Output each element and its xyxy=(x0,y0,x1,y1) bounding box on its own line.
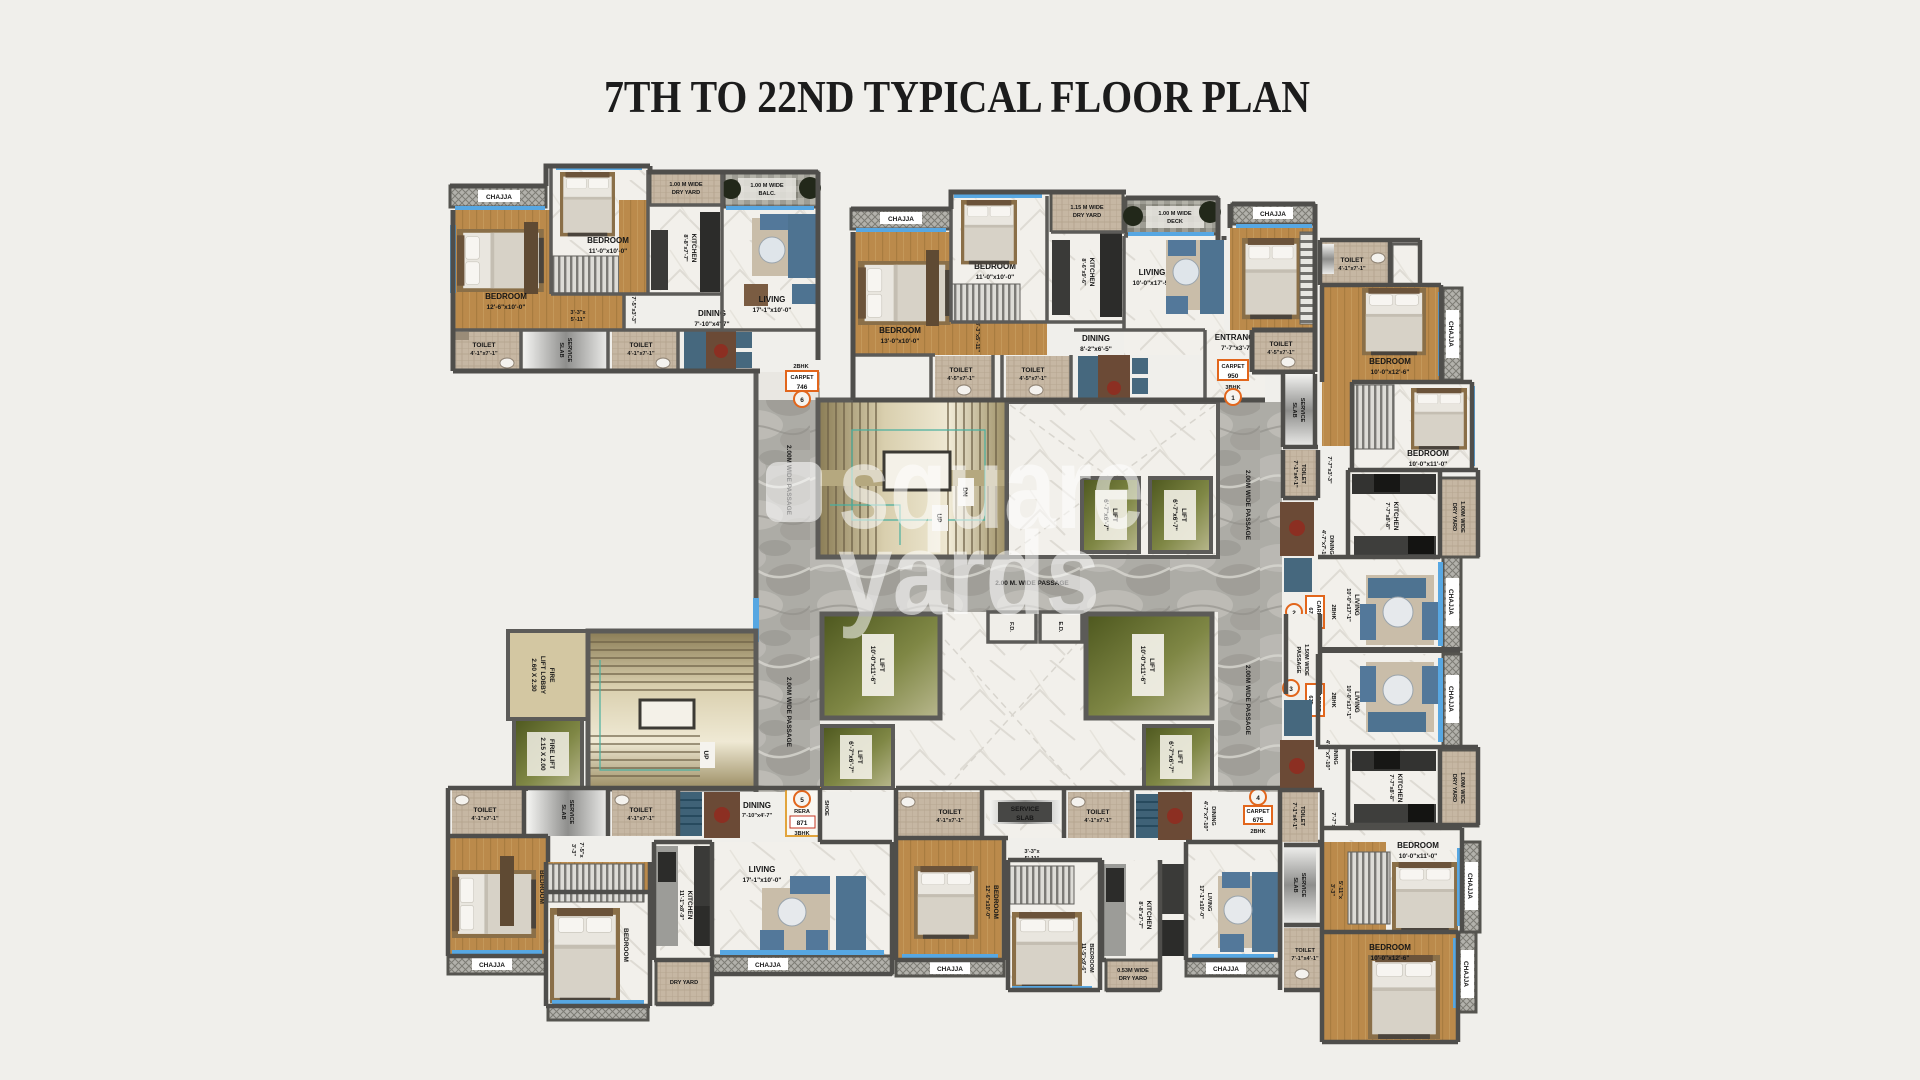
svg-text:DRY YARD: DRY YARD xyxy=(1073,213,1101,219)
svg-text:8'-2"x6'-5": 8'-2"x6'-5" xyxy=(1080,346,1112,353)
svg-text:950: 950 xyxy=(1228,373,1239,380)
svg-text:TOILET: TOILET xyxy=(1295,948,1315,954)
svg-text:CARPET: CARPET xyxy=(791,375,815,381)
svg-text:UP: UP xyxy=(702,750,709,760)
svg-text:7'-1"x4'-1": 7'-1"x4'-1" xyxy=(1292,460,1298,488)
svg-text:TOILET: TOILET xyxy=(1341,257,1364,264)
svg-text:4: 4 xyxy=(1256,795,1260,802)
svg-text:1.00 M WIDE: 1.00 M WIDE xyxy=(750,183,784,189)
svg-text:11'-1"x8'-9": 11'-1"x8'-9" xyxy=(678,890,684,920)
svg-text:10'-0"x12'-6": 10'-0"x12'-6" xyxy=(1371,369,1410,376)
svg-text:CHAJJA: CHAJJA xyxy=(1447,321,1454,347)
svg-text:6'-7"x6'-7": 6'-7"x6'-7" xyxy=(1171,499,1178,531)
svg-text:7'-10"x4'-7": 7'-10"x4'-7" xyxy=(742,813,773,819)
svg-text:BEDROOM: BEDROOM xyxy=(1407,449,1449,458)
svg-text:1.00 M WIDE: 1.00 M WIDE xyxy=(669,182,703,188)
svg-text:LIVING: LIVING xyxy=(1139,268,1166,277)
svg-text:10'-0"x11'-6": 10'-0"x11'-6" xyxy=(869,646,876,685)
svg-text:TOILET: TOILET xyxy=(630,807,653,814)
svg-text:2.15 X 2.00: 2.15 X 2.00 xyxy=(539,737,546,771)
svg-text:2.00M WIDE PASSAGE: 2.00M WIDE PASSAGE xyxy=(785,677,792,748)
svg-text:CHAJJA: CHAJJA xyxy=(1466,873,1473,899)
svg-text:LIFT: LIFT xyxy=(856,750,863,764)
svg-text:DRY YARD: DRY YARD xyxy=(1451,774,1457,802)
svg-text:3: 3 xyxy=(1289,686,1293,693)
svg-text:1.15 M WIDE: 1.15 M WIDE xyxy=(1070,205,1104,211)
svg-text:17'-1"x10'-0": 17'-1"x10'-0" xyxy=(1198,885,1204,919)
svg-text:1.00M WIDE: 1.00M WIDE xyxy=(1459,772,1465,804)
svg-text:SHOE: SHOE xyxy=(823,800,829,816)
svg-text:KITCHEN: KITCHEN xyxy=(1145,901,1152,930)
svg-text:SERVICE: SERVICE xyxy=(1011,806,1040,813)
svg-text:7'-5"x3'-3": 7'-5"x3'-3" xyxy=(630,296,636,324)
svg-text:7'-1"x4'-1": 7'-1"x4'-1" xyxy=(1291,956,1319,962)
svg-text:2.60 X 2.30: 2.60 X 2.30 xyxy=(530,658,537,692)
svg-text:CARPET: CARPET xyxy=(1222,364,1246,370)
svg-text:DINING: DINING xyxy=(1210,806,1216,826)
svg-text:SLAB: SLAB xyxy=(1016,815,1034,822)
svg-text:BEDROOM: BEDROOM xyxy=(879,326,921,335)
svg-text:10'-0"x12'-6": 10'-0"x12'-6" xyxy=(1371,955,1410,962)
svg-text:1: 1 xyxy=(1231,395,1235,402)
svg-text:7'-7"x3'-7": 7'-7"x3'-7" xyxy=(1221,345,1253,352)
svg-text:7'-7"x3'-3": 7'-7"x3'-3" xyxy=(1326,456,1332,484)
svg-text:3'-3"x5'-11": 3'-3"x5'-11" xyxy=(974,322,980,352)
svg-text:RERA: RERA xyxy=(794,809,810,815)
svg-text:LIFT: LIFT xyxy=(1180,508,1187,522)
svg-text:6'-7"x6'-7": 6'-7"x6'-7" xyxy=(1167,741,1174,773)
svg-text:DINING: DINING xyxy=(743,801,771,810)
svg-text:4'-1"x7'-1": 4'-1"x7'-1" xyxy=(1084,818,1112,824)
svg-text:BEDROOM: BEDROOM xyxy=(992,885,999,919)
svg-text:LIFT LOBBY: LIFT LOBBY xyxy=(539,656,546,695)
svg-text:3BHK: 3BHK xyxy=(794,831,809,837)
svg-text:8'-6"x9'-6": 8'-6"x9'-6" xyxy=(1080,258,1086,286)
svg-text:TOILET: TOILET xyxy=(474,807,497,814)
svg-text:SERVICE: SERVICE xyxy=(1300,873,1306,898)
svg-text:10'-0"x17'-5": 10'-0"x17'-5" xyxy=(1133,280,1172,287)
svg-text:10'-0"x17'-1": 10'-0"x17'-1" xyxy=(1345,685,1351,719)
svg-text:CHAJJA: CHAJJA xyxy=(1447,589,1454,615)
svg-text:2BHK: 2BHK xyxy=(1250,829,1265,835)
svg-text:BEDROOM: BEDROOM xyxy=(485,292,527,301)
svg-text:CHAJJA: CHAJJA xyxy=(1213,966,1239,973)
svg-text:1.00 M WIDE: 1.00 M WIDE xyxy=(1158,211,1192,217)
svg-text:12'-6"x10'-0": 12'-6"x10'-0" xyxy=(984,885,990,919)
svg-text:13'-0"x10'-0": 13'-0"x10'-0" xyxy=(881,338,920,345)
svg-text:BEDROOM: BEDROOM xyxy=(587,236,629,245)
svg-text:CHAJJA: CHAJJA xyxy=(755,962,781,969)
svg-text:3'-3": 3'-3" xyxy=(570,844,576,856)
svg-text:DRY YARD: DRY YARD xyxy=(672,190,700,196)
svg-text:3'-3"x: 3'-3"x xyxy=(1024,849,1040,855)
svg-text:FIRE: FIRE xyxy=(548,668,555,683)
svg-text:4'-1"x7'-1": 4'-1"x7'-1" xyxy=(1338,266,1366,272)
svg-text:1.50M WIDE: 1.50M WIDE xyxy=(1303,644,1309,676)
svg-text:7'-7"x8'-8": 7'-7"x8'-8" xyxy=(1388,774,1394,802)
svg-text:0.53M WIDE: 0.53M WIDE xyxy=(1117,968,1149,974)
svg-text:4'-1"x7'-1": 4'-1"x7'-1" xyxy=(936,818,964,824)
svg-text:5: 5 xyxy=(800,797,804,804)
svg-text:8'-8"x7'-7": 8'-8"x7'-7" xyxy=(1137,901,1143,929)
svg-text:CHAJJA: CHAJJA xyxy=(1462,961,1469,987)
svg-text:1.00M WIDE: 1.00M WIDE xyxy=(1459,501,1465,533)
svg-text:DRY YARD: DRY YARD xyxy=(670,980,698,986)
svg-text:8'-8"x7'-7": 8'-8"x7'-7" xyxy=(682,234,688,262)
svg-text:675: 675 xyxy=(1253,817,1264,824)
svg-text:yards: yards xyxy=(838,508,1100,640)
svg-text:7'-1"x4'-1": 7'-1"x4'-1" xyxy=(1291,802,1297,830)
svg-text:LIVING: LIVING xyxy=(1353,594,1360,616)
svg-text:KITCHEN: KITCHEN xyxy=(1396,774,1403,803)
svg-text:LIVING: LIVING xyxy=(759,295,786,304)
svg-text:5'-11": 5'-11" xyxy=(571,317,586,323)
svg-text:17'-1"x10'-0": 17'-1"x10'-0" xyxy=(753,307,792,314)
svg-text:4'-1"x7'-1": 4'-1"x7'-1" xyxy=(470,351,498,357)
svg-text:TOILET: TOILET xyxy=(1299,806,1305,826)
svg-text:3'-3": 3'-3" xyxy=(1329,884,1335,896)
svg-text:BEDROOM: BEDROOM xyxy=(1369,943,1411,952)
svg-text:10'-0"x17'-1": 10'-0"x17'-1" xyxy=(1345,588,1351,622)
svg-text:LIFT: LIFT xyxy=(1176,750,1183,764)
svg-text:2BHK: 2BHK xyxy=(1330,692,1336,707)
svg-text:2BHK: 2BHK xyxy=(793,364,808,370)
svg-text:SLAB: SLAB xyxy=(558,342,564,357)
svg-text:3'-3"x: 3'-3"x xyxy=(570,310,586,316)
svg-text:CHAJJA: CHAJJA xyxy=(479,962,505,969)
svg-text:TOILET: TOILET xyxy=(1270,341,1293,348)
svg-text:BEDROOM: BEDROOM xyxy=(1088,943,1094,973)
svg-text:4'-5"x7'-1": 4'-5"x7'-1" xyxy=(1019,376,1047,382)
svg-text:LIVING: LIVING xyxy=(749,865,776,874)
svg-text:DRY YARD: DRY YARD xyxy=(1119,976,1147,982)
svg-text:DINING: DINING xyxy=(1082,334,1110,343)
svg-text:871: 871 xyxy=(797,820,808,827)
svg-text:CHAJJA: CHAJJA xyxy=(937,966,963,973)
svg-text:SERVICE: SERVICE xyxy=(1299,398,1305,423)
svg-text:7'-10"x4'-7": 7'-10"x4'-7" xyxy=(694,321,729,328)
svg-text:CHAJJA: CHAJJA xyxy=(1447,686,1454,712)
svg-text:12'-6"x10'-0": 12'-6"x10'-0" xyxy=(487,304,526,311)
svg-text:746: 746 xyxy=(797,384,808,391)
svg-text:2.00M WIDE PASSAGE: 2.00M WIDE PASSAGE xyxy=(1244,470,1251,541)
svg-text:7'-7"x8'-8": 7'-7"x8'-8" xyxy=(1384,502,1390,530)
svg-text:CARPET: CARPET xyxy=(1247,809,1271,815)
svg-text:4'-1"x7'-1": 4'-1"x7'-1" xyxy=(627,351,655,357)
svg-text:CHAJJA: CHAJJA xyxy=(1260,211,1286,218)
svg-text:PASSAGE: PASSAGE xyxy=(1295,647,1301,674)
svg-text:DINING: DINING xyxy=(1328,535,1334,555)
svg-text:BALC.: BALC. xyxy=(758,191,776,197)
svg-text:TOILET: TOILET xyxy=(950,367,973,374)
svg-text:5'-11"x: 5'-11"x xyxy=(1337,881,1343,900)
svg-text:SLAB: SLAB xyxy=(560,804,566,819)
svg-text:LIFT: LIFT xyxy=(878,658,885,672)
svg-text:SLAB: SLAB xyxy=(1292,877,1298,892)
svg-text:6: 6 xyxy=(800,397,804,404)
svg-text:BEDROOM: BEDROOM xyxy=(1369,357,1411,366)
svg-text:10'-0"x11'-0": 10'-0"x11'-0" xyxy=(1399,853,1438,860)
svg-text:DRY YARD: DRY YARD xyxy=(1451,503,1457,531)
svg-text:CHAJJA: CHAJJA xyxy=(888,216,914,223)
svg-text:TOILET: TOILET xyxy=(1087,809,1110,816)
svg-text:BEDROOM: BEDROOM xyxy=(1397,841,1439,850)
svg-text:SERVICE: SERVICE xyxy=(568,800,574,825)
svg-text:4'-1"x7'-1": 4'-1"x7'-1" xyxy=(471,816,499,822)
svg-text:4'-1"x7'-1": 4'-1"x7'-1" xyxy=(627,816,655,822)
svg-text:KITCHEN: KITCHEN xyxy=(690,234,697,263)
svg-text:FIRE LIFT: FIRE LIFT xyxy=(548,739,555,769)
svg-text:6'-7"x6'-7": 6'-7"x6'-7" xyxy=(847,741,854,773)
svg-text:10'-0"x11'-0": 10'-0"x11'-0" xyxy=(1409,461,1448,468)
svg-text:BEDROOM: BEDROOM xyxy=(622,928,629,962)
svg-text:7'-5"x: 7'-5"x xyxy=(578,842,584,858)
svg-text:2BHK: 2BHK xyxy=(1330,604,1336,619)
svg-text:4'-5"x7'-1": 4'-5"x7'-1" xyxy=(947,376,975,382)
svg-text:LIVING: LIVING xyxy=(1353,691,1360,713)
svg-text:TOILET: TOILET xyxy=(473,342,496,349)
svg-text:7TH TO 22ND TYPICAL FLOOR PLAN: 7TH TO 22ND TYPICAL FLOOR PLAN xyxy=(604,71,1310,122)
svg-text:LIVING: LIVING xyxy=(1206,893,1212,912)
svg-text:TOILET: TOILET xyxy=(1300,464,1306,484)
svg-text:KITCHEN: KITCHEN xyxy=(686,891,693,920)
svg-text:2.00M WIDE PASSAGE: 2.00M WIDE PASSAGE xyxy=(1244,665,1251,736)
svg-text:KITCHEN: KITCHEN xyxy=(1088,258,1095,287)
svg-text:TOILET: TOILET xyxy=(1022,367,1045,374)
svg-text:4'-7"x7'-10": 4'-7"x7'-10" xyxy=(1202,801,1208,832)
svg-text:TOILET: TOILET xyxy=(630,342,653,349)
svg-text:11'-0"x10'-0": 11'-0"x10'-0" xyxy=(976,274,1015,281)
svg-text:SERVICE: SERVICE xyxy=(566,338,572,363)
svg-text:4'-7"x7'-10": 4'-7"x7'-10" xyxy=(1324,740,1330,771)
svg-text:SLAB: SLAB xyxy=(1291,402,1297,417)
svg-text:4'-5"x7'-1": 4'-5"x7'-1" xyxy=(1267,350,1295,356)
svg-text:17'-1"x10'-0": 17'-1"x10'-0" xyxy=(743,877,782,884)
svg-text:CHAJJA: CHAJJA xyxy=(486,194,512,201)
svg-text:11'-0"x10'-0": 11'-0"x10'-0" xyxy=(589,248,628,255)
svg-text:DECK: DECK xyxy=(1167,219,1183,225)
svg-text:KITCHEN: KITCHEN xyxy=(1392,502,1399,531)
svg-text:TOILET: TOILET xyxy=(939,809,962,816)
svg-text:LIFT: LIFT xyxy=(1148,658,1155,672)
svg-text:10'-0"x11'-6": 10'-0"x11'-6" xyxy=(1139,646,1146,685)
